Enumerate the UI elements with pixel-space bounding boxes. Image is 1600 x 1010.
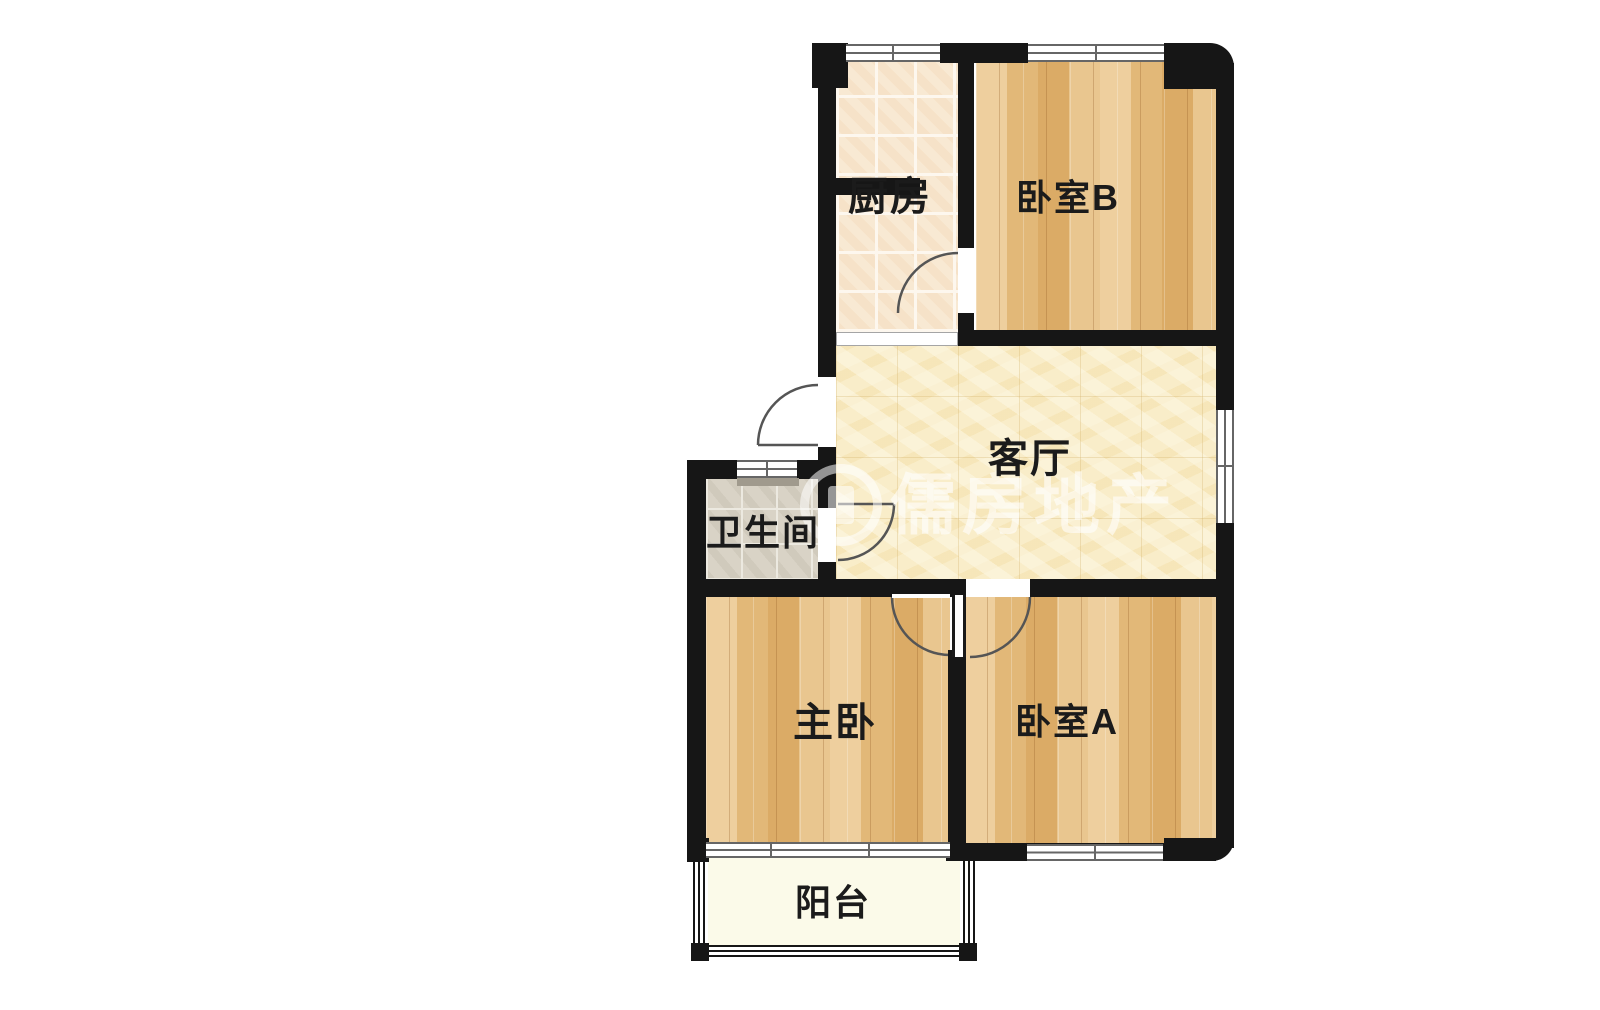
bedroom-doors-jamb (952, 595, 966, 657)
master-door-threshold (892, 594, 950, 598)
window-master-balcony (706, 842, 950, 858)
window-divider (1216, 465, 1234, 467)
wall-kitchen-bedb-divider-upper (958, 63, 974, 248)
kitchen-door-gap (958, 248, 974, 313)
room-living-label: 客厅 (988, 426, 1072, 484)
wall-top-segment (940, 43, 1028, 63)
bathroom-window-sill (737, 478, 799, 486)
wall-balcony-bottom-left-block (691, 943, 709, 961)
room-bedroom-a-label: 卧室A (1015, 693, 1119, 745)
window-divider (892, 44, 894, 62)
entry-door-gap (818, 377, 836, 447)
wall-balcony-bottom-right-block (959, 943, 977, 961)
window-divider (766, 460, 768, 478)
window-bedroom-b-top (1028, 44, 1164, 62)
wall-kitchen-left (818, 63, 836, 377)
wall-bottom-right-corner (1164, 838, 1234, 861)
floorplan-canvas: 儒房地产 厨房 卧室B 客厅 卫生间 主卧 卧室A 阳台 (0, 0, 1600, 1010)
window-divider (1095, 44, 1097, 62)
window-bedroom-a-bottom (1027, 844, 1163, 861)
room-master-label: 主卧 (793, 690, 877, 748)
room-kitchen-label: 厨房 (848, 164, 932, 222)
bedroom-a-door-lintel (966, 579, 1030, 597)
window-divider (1094, 844, 1096, 861)
window-divider (770, 842, 772, 858)
window-divider (868, 842, 870, 858)
window-living-right (1216, 410, 1234, 523)
wall-bottom-main-east (1030, 579, 1216, 597)
entry-door-arc (758, 385, 818, 445)
wall-bedroom-divider (948, 650, 966, 861)
room-bathroom-label: 卫生间 (706, 504, 820, 556)
wall-right-lower (1216, 523, 1234, 848)
wall-right-upper (1216, 63, 1234, 410)
room-bedroom-b-label: 卧室B (1016, 169, 1120, 221)
window-bathroom-top (737, 460, 797, 478)
wall-bedb-bottom (958, 330, 1216, 346)
room-balcony-label: 阳台 (795, 874, 871, 926)
kitchen-passage-lintel (836, 332, 958, 346)
wall-left-main (687, 460, 706, 862)
window-kitchen-top (846, 44, 940, 62)
